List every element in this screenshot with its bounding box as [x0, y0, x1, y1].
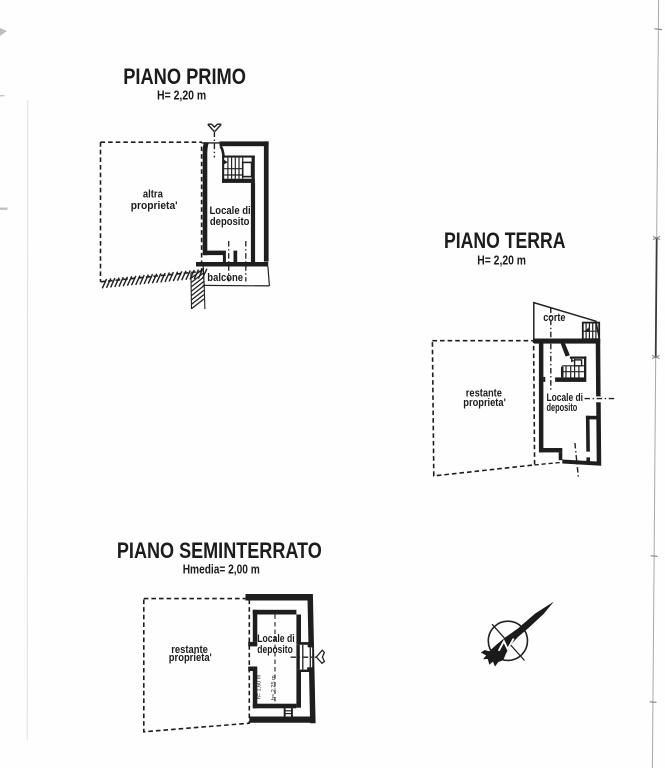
svg-text:PIANO TERRA: PIANO TERRA — [444, 228, 566, 253]
svg-text:Hmedia= 2,00 m: Hmedia= 2,00 m — [183, 562, 260, 576]
svg-text:corte: corte — [543, 312, 565, 324]
svg-text:PIANO SEMINTERRATO: PIANO SEMINTERRATO — [117, 538, 322, 563]
svg-text:balcone: balcone — [207, 272, 243, 284]
svg-text:deposito: deposito — [547, 402, 578, 414]
svg-text:deposito: deposito — [210, 216, 250, 228]
svg-text:proprieta': proprieta' — [131, 200, 178, 212]
svg-text:proprieta': proprieta' — [169, 652, 212, 664]
svg-text:h= 1,60 m: h= 1,60 m — [257, 674, 263, 699]
svg-text:PIANO PRIMO: PIANO PRIMO — [123, 64, 246, 89]
svg-text:H= 2,20 m: H= 2,20 m — [157, 89, 206, 103]
svg-text:proprieta': proprieta' — [463, 397, 506, 409]
svg-text:altra: altra — [143, 189, 163, 201]
svg-text:H= 2,20 m: H= 2,20 m — [477, 254, 526, 268]
svg-text:h= 2,25 m: h= 2,25 m — [271, 675, 277, 700]
